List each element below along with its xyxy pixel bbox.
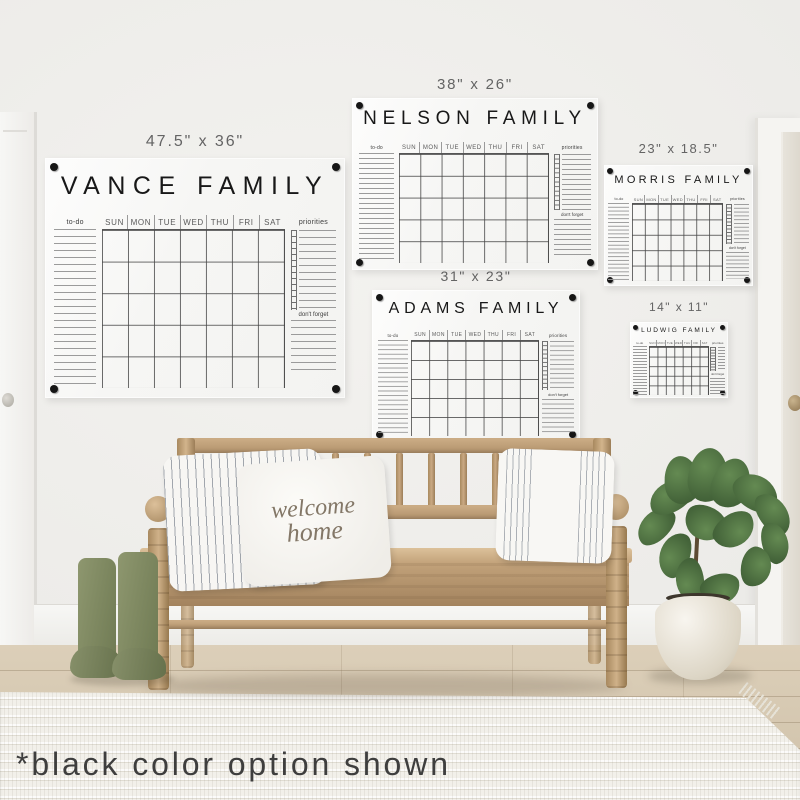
bench-shadow [145, 674, 625, 698]
rain-boot-right-foot [112, 648, 166, 680]
striped-pillow-right [495, 448, 615, 564]
right-door-knob [788, 395, 800, 411]
day-label: THU [484, 142, 506, 153]
calendar-grid [102, 230, 285, 388]
day-label: MON [656, 340, 665, 346]
dont-forget-label: don't forget [291, 312, 336, 318]
todo-label: to-do [359, 142, 394, 153]
board-title: NELSON FAMILY [352, 108, 598, 130]
dont-forget-lines [554, 219, 591, 258]
priorities-checklist [710, 347, 725, 371]
left-door [0, 112, 37, 645]
day-label: SAT [520, 330, 538, 340]
day-label: SUN [411, 330, 428, 340]
day-label: TUE [447, 330, 465, 340]
priorities-label: priorities [291, 215, 336, 229]
day-header-row: SUNMONTUEWEDTHUFRISAT [632, 195, 723, 204]
todo-ruled-lines [608, 203, 629, 281]
priorities-checklist [554, 154, 591, 210]
calendar-board-nelson: NELSON FAMILY to-do SUNMONTUEWEDTHUFRISA… [352, 98, 598, 270]
welcome-home-pillow: welcome home [236, 455, 392, 587]
day-label: SUN [632, 195, 644, 203]
dont-forget-lines [710, 378, 725, 395]
todo-ruled-lines [54, 229, 96, 388]
day-label: THU [484, 330, 502, 340]
calendar-board-adams: ADAMS FAMILY to-do SUNMONTUEWEDTHUFRISAT… [372, 290, 580, 442]
mounting-dot [332, 163, 340, 171]
annotation-text: *black color option shown [16, 746, 451, 783]
entryway-product-photo: 47.5" x 36" 38" x 26" 23" x 18.5" 31" x … [0, 0, 800, 800]
dont-forget-lines [542, 399, 573, 433]
day-label: SAT [710, 195, 723, 203]
day-label: FRI [502, 330, 520, 340]
checkbox-column [554, 154, 560, 210]
calendar-grid [649, 347, 709, 395]
dont-forget-lines [291, 320, 336, 375]
todo-ruled-lines [359, 153, 394, 263]
checkbox-column [291, 230, 297, 310]
priorities-checklist [291, 230, 336, 310]
calendar-board-ludwig: LUDWIG FAMILY to-do SUNMONTUEWEDTHUFRISA… [630, 322, 728, 398]
todo-ruled-lines [633, 346, 647, 395]
dont-forget-label: don't forget [554, 212, 591, 217]
day-label: FRI [697, 195, 710, 203]
day-label: THU [684, 195, 697, 203]
area-rug [0, 688, 800, 800]
size-label-nelson: 38" x 26" [352, 76, 598, 93]
checkbox-column [726, 204, 732, 244]
todo-label: to-do [378, 330, 407, 340]
pillow-text-home: home [286, 518, 344, 547]
priorities-checklist [542, 341, 573, 390]
day-label: SAT [527, 142, 549, 153]
day-label: TUE [154, 215, 180, 229]
dont-forget-lines [726, 252, 748, 280]
day-label: TUE [665, 340, 674, 346]
calendar-grid [411, 341, 538, 436]
day-label: TUE [441, 142, 463, 153]
day-label: WED [463, 142, 485, 153]
day-label: WED [465, 330, 483, 340]
priorities-checklist [726, 204, 748, 244]
day-label: WED [674, 340, 683, 346]
day-label: WED [671, 195, 684, 203]
priorities-label: priorities [554, 142, 591, 153]
day-label: SAT [700, 340, 709, 346]
priorities-label: priorities [710, 340, 725, 346]
size-label-adams: 31" x 23" [372, 268, 580, 284]
left-door-knob [2, 393, 14, 407]
day-label: SAT [259, 215, 285, 229]
todo-label: to-do [54, 215, 96, 229]
checkbox-column [542, 341, 548, 390]
todo-label: to-do [608, 195, 629, 203]
size-label-morris: 23" x 18.5" [604, 141, 753, 156]
day-label: FRI [506, 142, 528, 153]
day-label: FRI [691, 340, 700, 346]
day-label: MON [644, 195, 657, 203]
day-header-row: SUNMONTUEWEDTHUFRISAT [102, 215, 285, 230]
day-label: MON [419, 142, 441, 153]
todo-ruled-lines [378, 340, 407, 436]
day-label: THU [206, 215, 232, 229]
day-header-row: SUNMONTUEWEDTHUFRISAT [649, 340, 709, 347]
dont-forget-label: don't forget [542, 392, 573, 397]
checkbox-column [710, 347, 716, 371]
bench-spindle [460, 453, 467, 507]
calendar-grid [399, 154, 549, 263]
calendar-grid [632, 204, 723, 281]
dont-forget-label: don't forget [726, 246, 748, 250]
day-label: SUN [649, 340, 657, 346]
calendar-board-vance: VANCE FAMILY to-do SUNMONTUEWEDTHUFRISAT… [45, 158, 345, 398]
priorities-label: priorities [542, 330, 573, 340]
day-label: THU [682, 340, 691, 346]
calendar-board-morris: MORRIS FAMILY to-do SUNMONTUEWEDTHUFRISA… [604, 165, 753, 286]
door-panel-line [3, 130, 27, 132]
day-label: FRI [233, 215, 259, 229]
day-label: SUN [399, 142, 420, 153]
mounting-dot [50, 163, 58, 171]
day-header-row: SUNMONTUEWEDTHUFRISAT [399, 142, 549, 154]
priorities-label: priorities [726, 195, 748, 203]
board-title: VANCE FAMILY [45, 172, 345, 201]
day-header-row: SUNMONTUEWEDTHUFRISAT [411, 330, 538, 341]
board-title: LUDWIG FAMILY [630, 327, 728, 334]
day-label: MON [127, 215, 153, 229]
bench-stretcher [158, 620, 620, 629]
size-label-vance: 47.5" x 36" [45, 133, 345, 151]
day-label: TUE [658, 195, 671, 203]
board-title: MORRIS FAMILY [604, 174, 753, 186]
bench-spindle [428, 453, 435, 507]
dont-forget-label: don't forget [710, 373, 725, 376]
bench-spindle [396, 453, 403, 507]
day-label: SUN [102, 215, 127, 229]
day-label: WED [180, 215, 206, 229]
board-title: ADAMS FAMILY [372, 300, 580, 318]
size-label-ludwig: 14" x 11" [630, 300, 728, 314]
day-label: MON [429, 330, 447, 340]
